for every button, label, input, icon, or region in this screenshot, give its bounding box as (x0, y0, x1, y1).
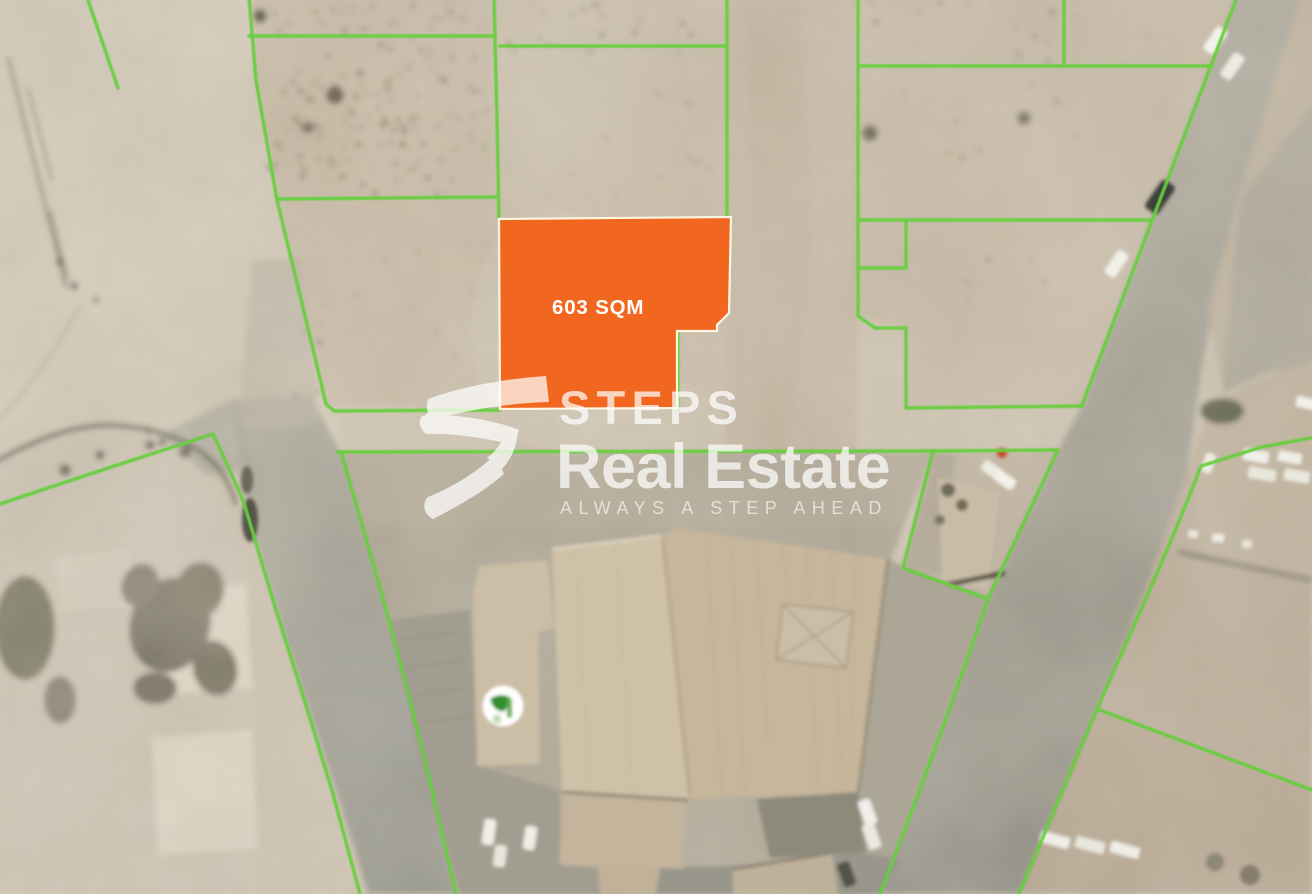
svg-text:603 SQM: 603 SQM (552, 296, 644, 319)
svg-text:Real Estate: Real Estate (556, 432, 890, 502)
svg-text:ALWAYS A STEP AHEAD: ALWAYS A STEP AHEAD (560, 498, 888, 518)
svg-text:STEPS: STEPS (559, 381, 744, 434)
